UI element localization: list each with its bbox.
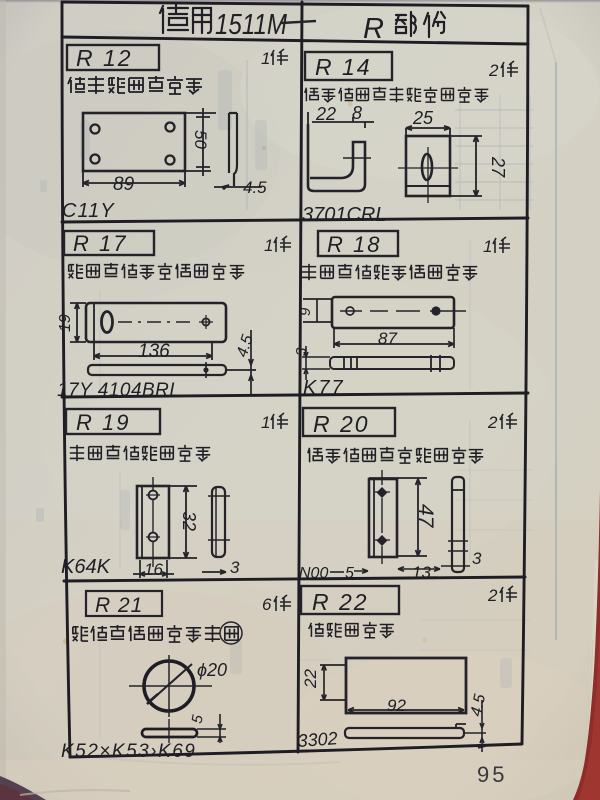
svg-text:3: 3 (293, 347, 310, 356)
svg-text:87: 87 (378, 329, 397, 348)
svg-text:17Y 4104BRL: 17Y 4104BRL (57, 380, 180, 401)
svg-text:R 19: R 19 (76, 410, 130, 435)
svg-text:R 14: R 14 (315, 54, 372, 80)
svg-text:R 20: R 20 (313, 411, 370, 437)
svg-text:K64K: K64K (61, 556, 112, 578)
svg-text:1511M: 1511M (215, 9, 288, 41)
svg-text:16: 16 (144, 560, 163, 579)
svg-text:32: 32 (179, 511, 199, 531)
svg-text:22: 22 (301, 669, 320, 689)
svg-text:R: R (363, 13, 384, 45)
svg-text:5: 5 (345, 565, 354, 582)
svg-text:K52×K53›K69: K52×K53›K69 (61, 741, 196, 762)
svg-text:3701CRL: 3701CRL (302, 204, 387, 226)
svg-text:95: 95 (477, 762, 507, 787)
svg-text:R 12: R 12 (76, 45, 133, 71)
svg-text:50: 50 (191, 130, 210, 149)
svg-text:R 22: R 22 (312, 589, 369, 615)
svg-text:1: 1 (264, 236, 273, 255)
svg-text:19: 19 (57, 314, 74, 332)
svg-text:4.5: 4.5 (243, 178, 267, 197)
svg-text:R 17: R 17 (73, 231, 127, 256)
svg-text:2: 2 (487, 586, 498, 605)
svg-text:1: 1 (261, 49, 270, 68)
svg-text:136: 136 (138, 341, 170, 362)
svg-text:47: 47 (414, 504, 437, 529)
svg-text:3: 3 (472, 549, 482, 568)
svg-text:6: 6 (262, 595, 272, 614)
svg-text:ϕ20: ϕ20 (197, 660, 227, 680)
svg-text:2: 2 (487, 413, 498, 432)
svg-text:R 21: R 21 (95, 594, 143, 617)
svg-text:3: 3 (230, 558, 240, 577)
svg-text:89: 89 (113, 174, 135, 195)
svg-text:1: 1 (483, 237, 492, 256)
svg-text:3302: 3302 (297, 728, 338, 751)
svg-text:2: 2 (488, 61, 499, 80)
svg-text:K77: K77 (303, 377, 345, 399)
svg-text:9: 9 (297, 307, 314, 316)
svg-text:N00: N00 (299, 565, 328, 582)
svg-text:R 18: R 18 (327, 232, 381, 257)
svg-text:25: 25 (412, 108, 434, 128)
svg-text:C11Y: C11Y (62, 200, 115, 222)
svg-text:1: 1 (261, 413, 270, 432)
svg-text:13: 13 (412, 563, 431, 582)
svg-text:27: 27 (488, 156, 508, 178)
svg-text:92: 92 (387, 696, 406, 715)
svg-text:22: 22 (315, 104, 336, 124)
